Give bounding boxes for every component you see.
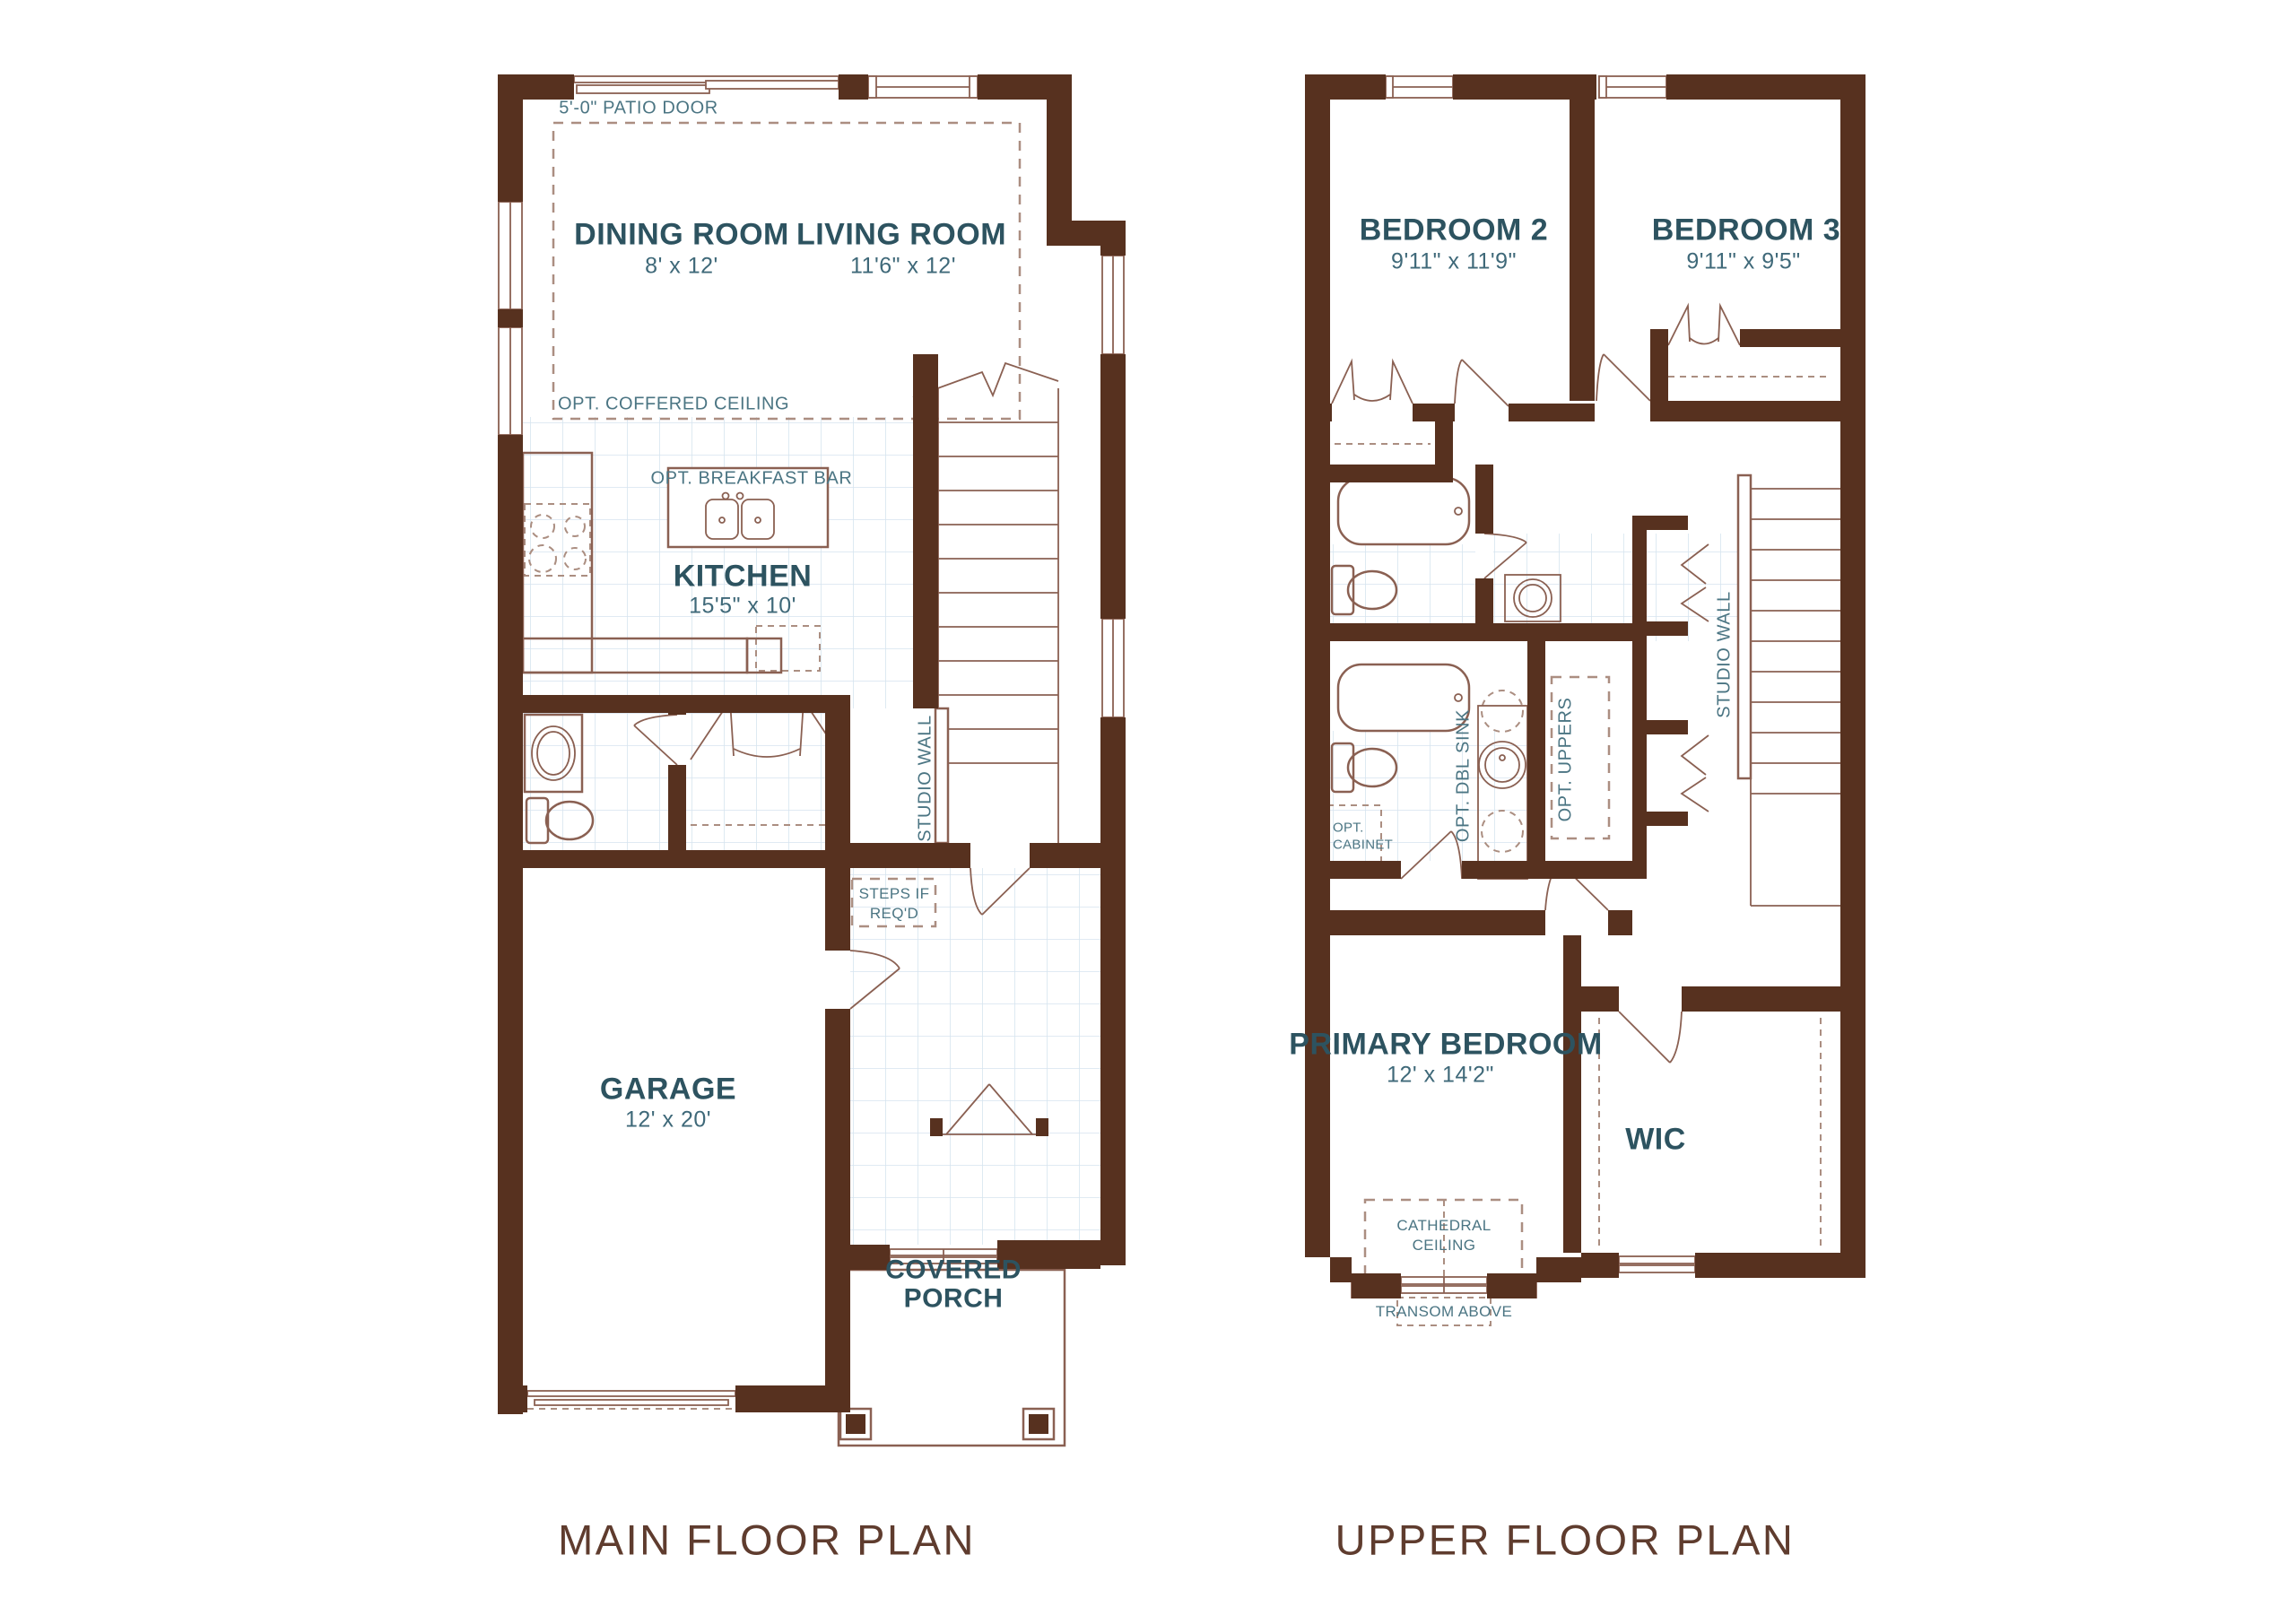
bedroom2-dims: 9'11" x 11'9": [1391, 249, 1517, 275]
dbl-sink-label: OPT. DBL SINK: [1454, 709, 1474, 842]
living-room-dims: 11'6" x 12': [850, 254, 956, 280]
dining-room-label: DINING ROOM: [574, 218, 789, 253]
garage-dims: 12' x 20': [625, 1107, 711, 1133]
kitchen-label: KITCHEN: [674, 560, 813, 595]
studio-wall-glyph: [935, 708, 948, 843]
cathedral-ceiling-label: CATHEDRAL CEILING: [1386, 1216, 1502, 1255]
covered-porch-label: COVERED PORCH: [868, 1256, 1039, 1315]
bedroom3-dims: 9'11" x 9'5": [1686, 249, 1800, 275]
staircase-upper: [1738, 475, 1840, 906]
wic-label: WIC: [1625, 1123, 1686, 1158]
living-room-label: LIVING ROOM: [796, 218, 1006, 253]
studio-wall-label-upper: STUDIO WALL: [1715, 591, 1735, 717]
dining-room-dims: 8' x 12': [645, 254, 718, 280]
steps-if-reqd-label: STEPS IF REQ'D: [840, 884, 948, 924]
bedroom2-label: BEDROOM 2: [1360, 213, 1548, 248]
patio-door-label: 5'-0" PATIO DOOR: [559, 99, 718, 119]
floor-plan-page: { "colors": { "wall": "#57311f", "line":…: [0, 0, 2296, 1598]
primary-bedroom-dims: 12' x 14'2": [1387, 1063, 1494, 1089]
breakfast-bar-label: OPT. BREAKFAST BAR: [651, 469, 853, 490]
main-floor-plan-title: MAIN FLOOR PLAN: [558, 1515, 976, 1565]
upper-floor-plan-title: UPPER FLOOR PLAN: [1335, 1515, 1796, 1565]
transom-above-label: TRANSOM ABOVE: [1354, 1302, 1534, 1322]
garage-label: GARAGE: [600, 1073, 736, 1107]
kitchen-dims: 15'5" x 10': [689, 594, 796, 620]
primary-bedroom-label: PRIMARY BEDROOM: [1289, 1028, 1602, 1063]
bedroom3-label: BEDROOM 3: [1652, 213, 1840, 248]
opt-cabinet-label: OPT. CABINET: [1333, 820, 1397, 854]
coffered-ceiling-label: OPT. COFFERED CEILING: [558, 395, 789, 415]
opt-uppers-label: OPT. UPPERS: [1556, 698, 1577, 822]
studio-wall-label-main: STUDIO WALL: [916, 715, 936, 841]
